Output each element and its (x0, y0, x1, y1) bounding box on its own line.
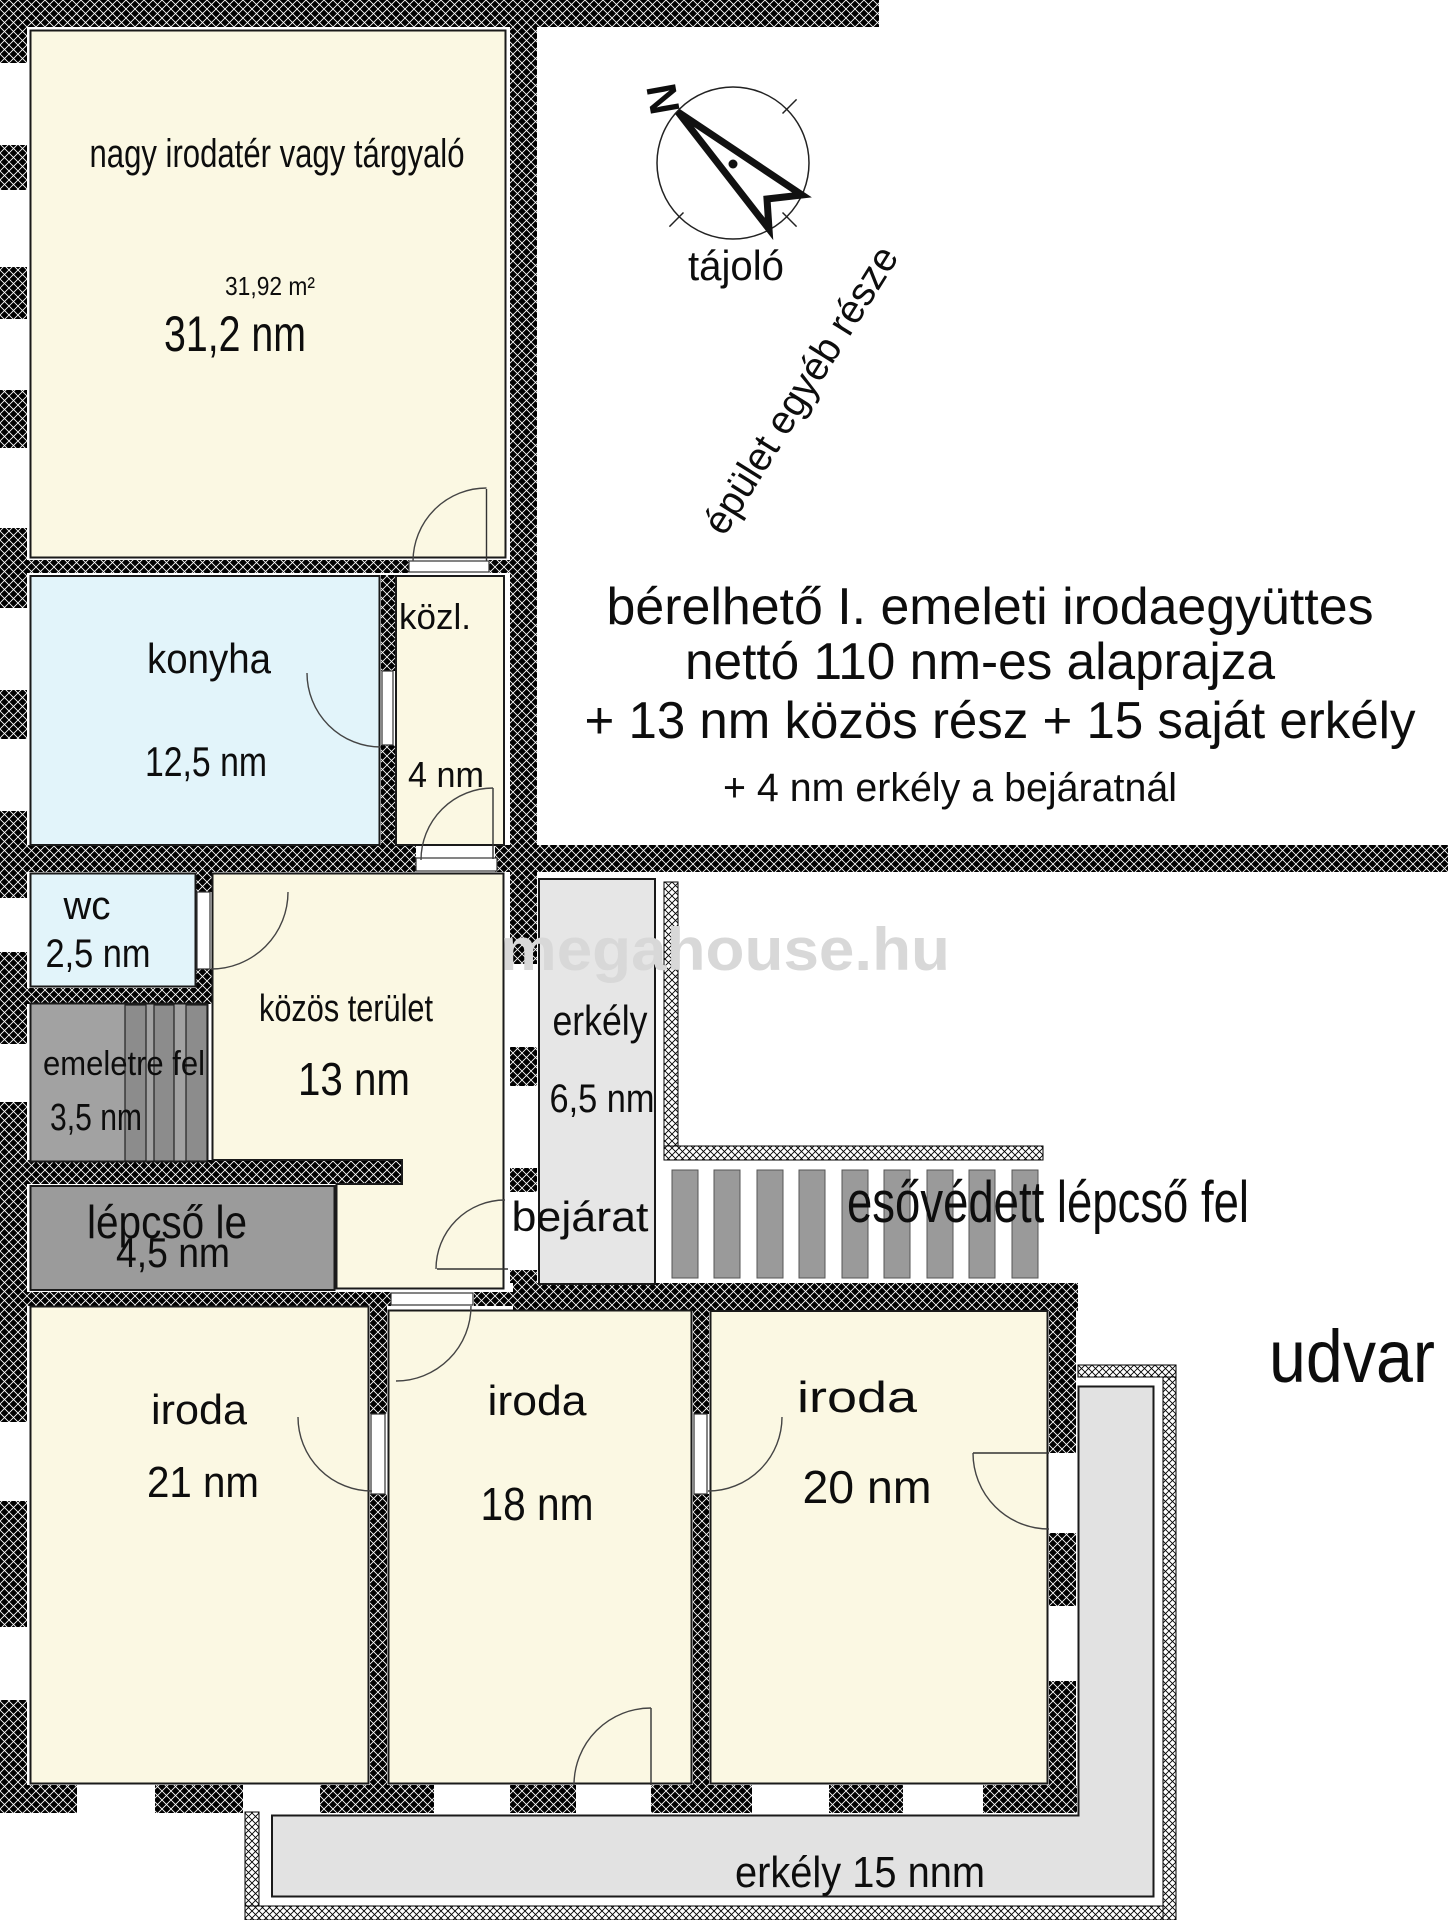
svg-text:konyha: konyha (147, 635, 272, 682)
svg-text:20 nm: 20 nm (803, 1461, 932, 1513)
svg-text:megahouse.hu: megahouse.hu (500, 916, 950, 983)
svg-text:+ 4 nm erkély a bejáratnál: + 4 nm erkély a bejáratnál (723, 766, 1177, 810)
svg-text:12,5 nm: 12,5 nm (145, 738, 267, 785)
svg-text:erkély 15 nnm: erkély 15 nnm (735, 1848, 985, 1897)
svg-text:iroda: iroda (488, 1377, 588, 1424)
svg-text:2,5 nm: 2,5 nm (46, 932, 151, 976)
svg-text:4 nm: 4 nm (408, 754, 484, 795)
svg-text:21 nm: 21 nm (147, 1458, 259, 1507)
svg-text:nettó 110 nm-es alaprajza: nettó 110 nm-es alaprajza (685, 633, 1275, 691)
svg-text:esővédett lépcső fel: esővédett lépcső fel (847, 1170, 1249, 1235)
svg-text:erkély: erkély (553, 997, 648, 1044)
svg-text:közl.: közl. (399, 596, 471, 637)
svg-text:emeletre fel: emeletre fel (43, 1045, 205, 1083)
svg-text:3,5 nm: 3,5 nm (50, 1097, 142, 1139)
svg-text:iroda: iroda (151, 1386, 248, 1433)
svg-text:iroda: iroda (797, 1373, 918, 1422)
svg-text:18 nm: 18 nm (481, 1478, 594, 1530)
svg-text:6,5 nm: 6,5 nm (550, 1077, 655, 1121)
svg-text:nagy irodatér vagy tárgyaló: nagy irodatér vagy tárgyaló (90, 132, 465, 176)
svg-text:31,2 nm: 31,2 nm (164, 306, 306, 362)
svg-text:wc: wc (63, 884, 111, 928)
svg-text:közös terület: közös terület (259, 988, 433, 1030)
svg-text:udvar: udvar (1269, 1315, 1435, 1398)
svg-text:+ 13 nm közös rész + 15 saját: + 13 nm közös rész + 15 saját erkély (585, 692, 1416, 750)
svg-text:bejárat: bejárat (512, 1193, 649, 1240)
svg-text:31,92 m²: 31,92 m² (225, 271, 315, 301)
svg-text:bérelhető I. emeleti irodaegyü: bérelhető I. emeleti irodaegyüttes (607, 578, 1374, 636)
svg-text:tájoló: tájoló (688, 242, 784, 289)
svg-text:13 nm: 13 nm (298, 1053, 410, 1105)
svg-text:4,5 nm: 4,5 nm (116, 1229, 230, 1276)
